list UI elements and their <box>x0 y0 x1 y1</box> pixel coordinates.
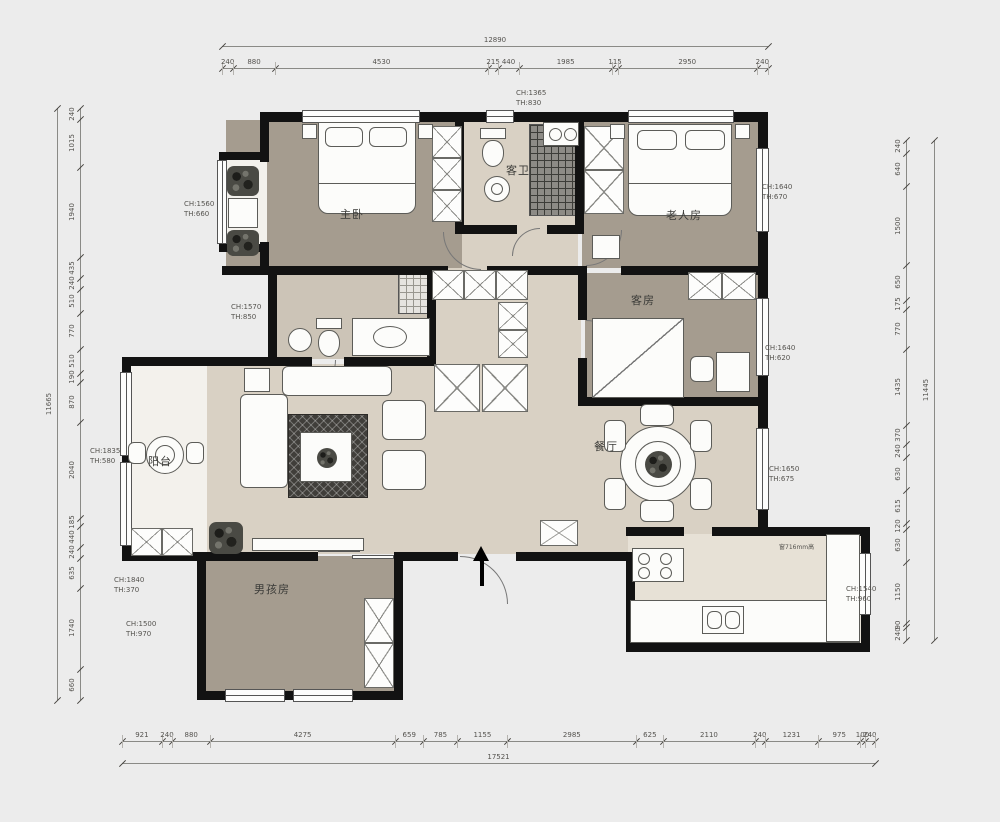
wall-segment <box>394 552 403 700</box>
entrance-arrow <box>470 546 494 590</box>
wall-segment <box>396 552 458 561</box>
wall-segment <box>626 643 870 652</box>
armchair <box>382 450 426 490</box>
dim-value: 510 <box>68 294 76 307</box>
room-label-dining-room: 餐厅 <box>594 438 618 454</box>
dim-ext <box>765 735 766 748</box>
dim-value: 2950 <box>678 58 696 66</box>
window-height-note: CH:1640TH:670 <box>762 182 792 202</box>
sliding-door-boys-room <box>352 555 394 559</box>
bed-fold <box>629 183 731 184</box>
dim-value: 1015 <box>68 134 76 152</box>
dim-tick <box>931 637 938 644</box>
dim-line <box>934 140 935 640</box>
dim-ext <box>498 62 499 75</box>
wardrobe-cabinet-symbol <box>432 158 462 190</box>
dim-value: 635 <box>68 566 76 579</box>
dim-ext <box>457 735 458 748</box>
dim-value: 1740 <box>68 620 76 638</box>
window-boys-1 <box>225 689 285 702</box>
dim-line <box>222 68 768 69</box>
kitchen-window-note: 窗716mm高 <box>779 544 814 553</box>
dim-ext <box>395 735 396 748</box>
wall-segment <box>122 357 278 366</box>
sofa-back <box>282 366 392 396</box>
pedestal-sink <box>288 328 312 352</box>
dim-ext <box>122 735 123 748</box>
dim-ext <box>172 735 173 748</box>
dim-tick <box>765 43 772 50</box>
wall-segment <box>578 397 768 406</box>
corner-table <box>244 368 270 392</box>
dim-value: 2985 <box>563 731 581 739</box>
window-height-note: CH:1650TH:675 <box>769 464 799 484</box>
dim-line <box>57 108 58 700</box>
dim-value: 1985 <box>557 58 575 66</box>
guest-desk <box>716 352 750 392</box>
dim-value: 640 <box>894 163 902 176</box>
window-height-note: CH:1500TH:970 <box>126 619 156 639</box>
dim-overall: 17521 <box>487 753 509 761</box>
dim-value: 1435 <box>894 378 902 396</box>
wardrobe-cabinet-symbol <box>464 270 496 300</box>
dim-value: 870 <box>68 395 76 408</box>
dining-chair <box>690 420 712 452</box>
sink-drain <box>491 183 503 195</box>
dim-value: 120 <box>894 519 902 532</box>
dim-value: 4275 <box>294 731 312 739</box>
wall-segment <box>344 357 436 366</box>
centerpiece <box>645 451 672 478</box>
wardrobe-cabinet-symbol <box>498 330 528 358</box>
dim-value: 2040 <box>68 461 76 479</box>
dim-line <box>80 108 81 700</box>
coffee-table <box>300 432 352 482</box>
balcony-chair <box>186 442 204 464</box>
pillow <box>325 127 363 147</box>
wardrobe-cabinet-symbol <box>364 598 394 643</box>
window-bath-top <box>486 110 514 123</box>
dim-value: 435 <box>68 261 76 274</box>
toilet-bowl <box>318 330 340 357</box>
dim-value: 650 <box>894 276 902 289</box>
wardrobe-cabinet-symbol <box>432 190 462 222</box>
dim-ext <box>768 62 769 75</box>
dining-chair <box>640 500 674 522</box>
room-label-boys-room: 男孩房 <box>254 581 290 597</box>
bed-fold <box>319 183 415 184</box>
dim-tick <box>872 760 879 767</box>
wardrobe-cabinet-symbol <box>540 520 578 546</box>
dim-value: 175 <box>894 297 902 310</box>
dim-value: 1231 <box>783 731 801 739</box>
dim-overall: 11445 <box>922 379 930 401</box>
wardrobe-cabinet-symbol <box>722 272 756 300</box>
wardrobe-cabinet-symbol <box>432 270 464 300</box>
dim-ext <box>423 735 424 748</box>
dim-overall: 11665 <box>45 393 53 415</box>
toilet-bowl <box>482 140 504 167</box>
table-plant <box>317 448 337 468</box>
window-guest-right <box>756 298 769 376</box>
wardrobe-cabinet-symbol <box>498 302 528 330</box>
wall-segment <box>222 266 448 275</box>
window-height-note: CH:1570TH:850 <box>231 302 261 322</box>
dim-ext <box>275 62 276 75</box>
washer-counter <box>543 122 579 146</box>
guest-chair <box>690 356 714 382</box>
dim-ext <box>618 62 619 75</box>
nightstand <box>418 124 433 139</box>
dim-value: 660 <box>68 678 76 691</box>
room-label-elder-bedroom: 老人房 <box>666 207 702 223</box>
dim-value: 240 <box>68 277 76 290</box>
dim-value: 190 <box>68 370 76 383</box>
burner <box>660 567 672 579</box>
wardrobe-cabinet-symbol <box>364 643 394 688</box>
arrow-stem <box>480 560 484 586</box>
washer-dial <box>564 128 577 141</box>
armchair <box>382 400 426 440</box>
room-label-guest-bedroom: 客房 <box>631 292 655 308</box>
window-elder-top <box>628 110 734 123</box>
dim-value: 185 <box>68 515 76 528</box>
dim-value: 240 <box>894 140 902 153</box>
nightstand <box>302 124 317 139</box>
wall-segment <box>626 527 684 536</box>
dim-value: 440 <box>68 530 76 543</box>
dim-value: 240 <box>68 546 76 559</box>
dim-ext <box>233 62 234 75</box>
tv-console <box>252 538 364 551</box>
dim-ext <box>875 735 876 748</box>
stove <box>632 548 684 582</box>
dim-tick <box>77 697 84 704</box>
arrow-head <box>473 546 489 561</box>
dim-value: 1150 <box>894 583 902 601</box>
dim-value: 630 <box>894 539 902 552</box>
wardrobe-cabinet-symbol <box>162 528 193 556</box>
dim-value: 240 <box>68 107 76 120</box>
master-bed <box>318 122 416 214</box>
dim-value: 370 <box>894 428 902 441</box>
dim-ext <box>636 735 637 748</box>
dim-value: 615 <box>894 500 902 513</box>
plant-bay-2 <box>227 230 259 256</box>
window-height-note: CH:1835TH:580 <box>90 446 120 466</box>
dim-line <box>122 763 875 764</box>
dim-value: 785 <box>434 731 447 739</box>
nightstand <box>735 124 750 139</box>
kitchen-sink <box>702 606 744 634</box>
floor-plan-canvas: 1289024088045302154401985115295024092124… <box>0 0 1000 822</box>
plant-bay-1 <box>227 166 259 196</box>
counter-sink <box>373 326 407 348</box>
room-label-master-bedroom: 主卧 <box>340 206 364 222</box>
wall-segment <box>578 266 587 320</box>
dim-overall: 12890 <box>484 36 506 44</box>
wardrobe-cabinet-symbol <box>688 272 722 300</box>
pillow <box>685 130 725 150</box>
bath-sink <box>484 176 510 202</box>
window-master-bay <box>217 160 227 244</box>
dim-ext <box>507 735 508 748</box>
room-label-balcony: 阳台 <box>148 453 172 469</box>
dining-chair <box>640 404 674 426</box>
nightstand <box>610 124 625 139</box>
wall-segment <box>268 266 277 366</box>
window-height-note: CH:1640TH:620 <box>765 343 795 363</box>
room-label-guest-bathroom: 客卫 <box>506 162 530 178</box>
toilet-tank <box>316 318 342 329</box>
dim-value: 1940 <box>68 203 76 221</box>
dim-value: 2110 <box>700 731 718 739</box>
dim-line <box>906 140 907 640</box>
dim-value: 880 <box>185 731 198 739</box>
washer-dial <box>549 128 562 141</box>
dim-line <box>222 46 768 47</box>
burner <box>638 553 650 565</box>
sink-bowl <box>725 611 740 629</box>
dim-tick <box>54 697 61 704</box>
dim-value: 659 <box>403 731 416 739</box>
dim-ext <box>519 62 520 75</box>
window-dining-right <box>756 428 769 510</box>
pillow <box>637 130 677 150</box>
toilet-tank <box>480 128 506 139</box>
dim-line <box>122 741 875 742</box>
dim-ext <box>663 735 664 748</box>
elder-bed <box>628 124 732 216</box>
dim-ext <box>210 735 211 748</box>
bath-tile <box>398 270 428 314</box>
wardrobe-cabinet-symbol <box>434 364 480 412</box>
dim-value: 975 <box>833 731 846 739</box>
window-height-note: CH:1365TH:830 <box>516 88 546 108</box>
wardrobe-cabinet-symbol <box>482 364 528 412</box>
dim-value: 770 <box>894 322 902 335</box>
wardrobe-cabinet-symbol <box>584 170 624 214</box>
pillow <box>369 127 407 147</box>
dim-value: 1500 <box>894 217 902 235</box>
dim-value: 240 <box>894 627 902 640</box>
wardrobe-cabinet-symbol <box>432 126 462 158</box>
floor-entry <box>396 534 533 554</box>
bay-seat <box>228 198 258 228</box>
dim-value: 880 <box>247 58 260 66</box>
dim-value: 510 <box>68 354 76 367</box>
dining-chair <box>604 478 626 510</box>
dim-value: 625 <box>643 731 656 739</box>
dining-chair <box>690 478 712 510</box>
dim-value: 921 <box>135 731 148 739</box>
window-height-note: CH:1840TH:370 <box>114 575 144 595</box>
dim-value: 240 <box>894 444 902 457</box>
wall-segment <box>197 552 206 700</box>
balcony-chair <box>128 442 146 464</box>
dim-value: 4530 <box>372 58 390 66</box>
dim-value: 1155 <box>473 731 491 739</box>
sofa-left <box>240 394 288 488</box>
sink-bowl <box>707 611 722 629</box>
guest-bed <box>592 318 684 398</box>
plant-living-corner <box>209 522 243 554</box>
bath-counter <box>352 318 430 356</box>
dining-table <box>620 426 696 502</box>
window-height-note: CH:1560TH:660 <box>184 199 214 219</box>
window-boys-2 <box>293 689 353 702</box>
elder-side-table <box>592 235 620 259</box>
wardrobe-cabinet-symbol <box>131 528 162 556</box>
burner <box>638 567 650 579</box>
dim-value: 440 <box>502 58 515 66</box>
wall-segment <box>712 527 758 536</box>
wall-segment <box>219 152 269 160</box>
dim-value: 630 <box>894 467 902 480</box>
dim-ext <box>818 735 819 748</box>
window-height-note: CH:1540TH:960 <box>846 584 876 604</box>
dim-value: 770 <box>68 324 76 337</box>
dim-tick <box>903 637 910 644</box>
wardrobe-cabinet-symbol <box>496 270 528 300</box>
wall-segment <box>516 552 635 561</box>
burner <box>660 553 672 565</box>
